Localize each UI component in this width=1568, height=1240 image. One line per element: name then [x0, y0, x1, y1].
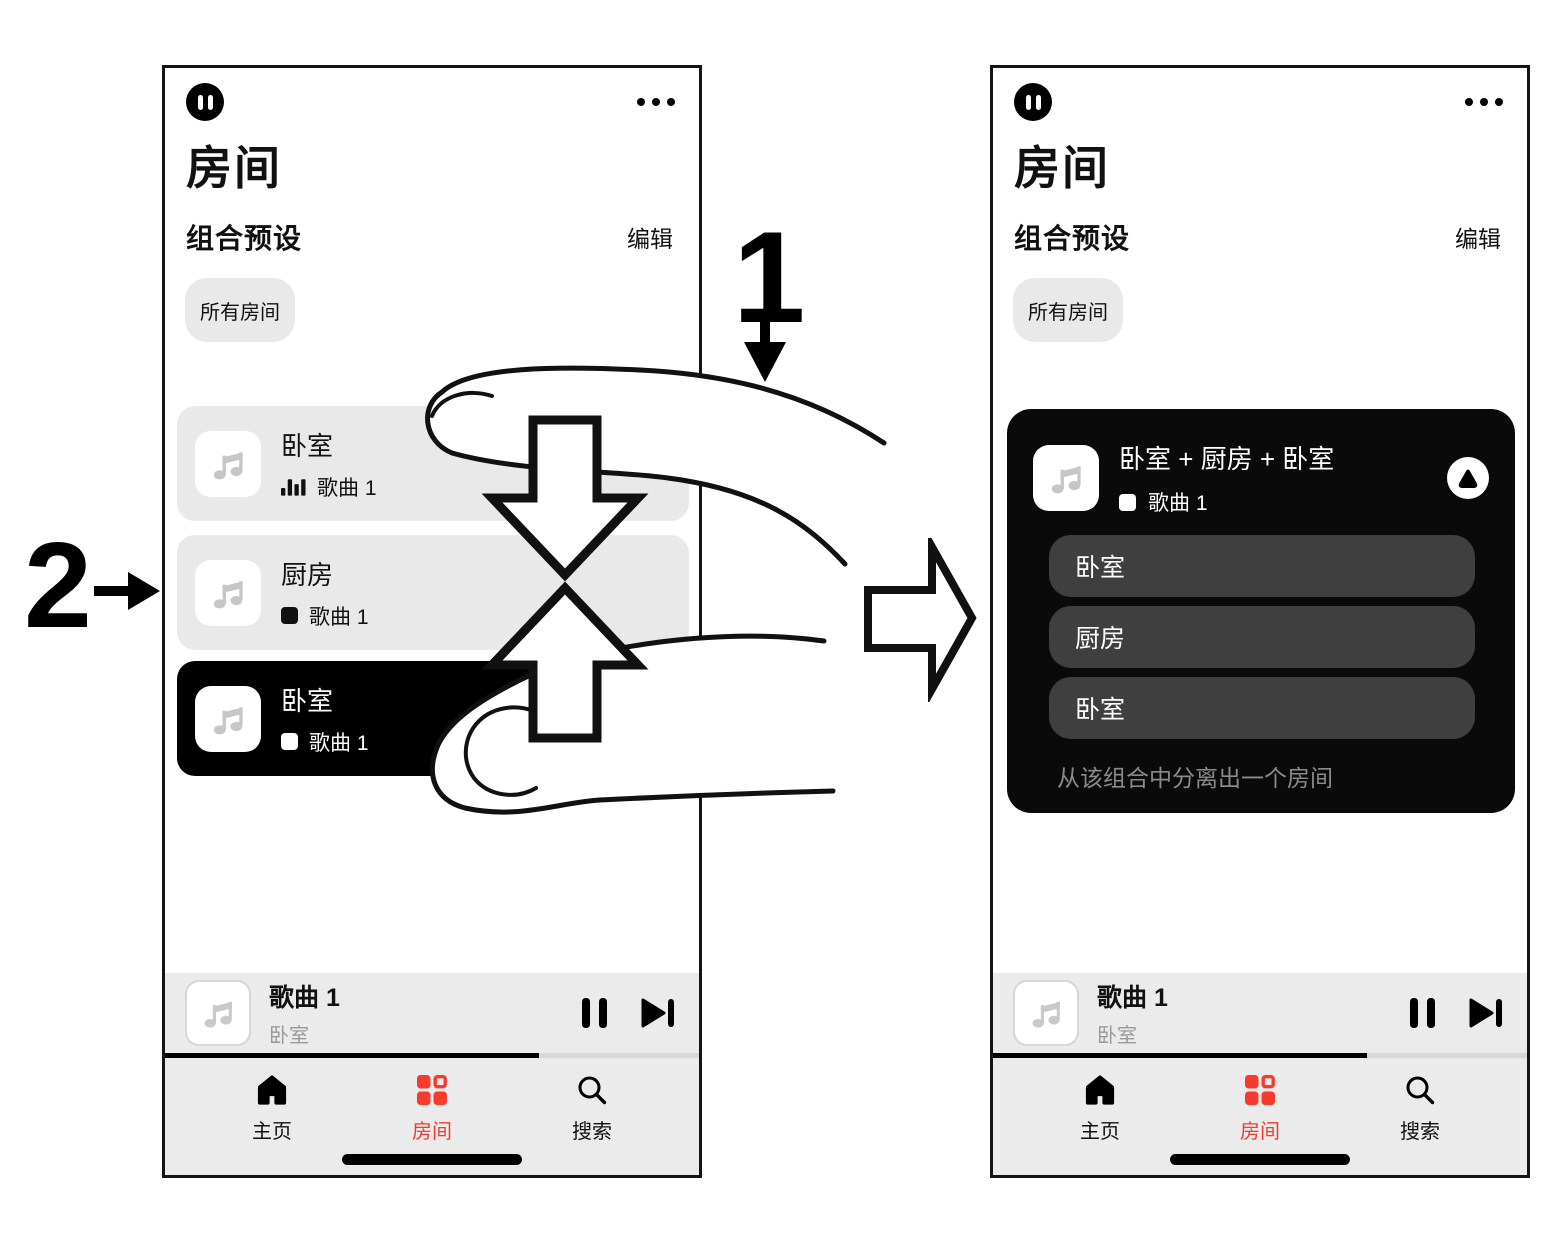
album-art-tile	[1033, 445, 1099, 511]
step-1-label: 1	[733, 212, 805, 342]
drop-icon	[1455, 465, 1481, 491]
room-track: 歌曲 1	[309, 601, 369, 631]
group-track: 歌曲 1	[1148, 487, 1208, 517]
room-name: 卧室	[281, 681, 369, 718]
group-output-button[interactable]	[1447, 457, 1489, 499]
section-title: 组合预设	[186, 217, 302, 257]
search-icon	[1403, 1074, 1437, 1106]
mini-player[interactable]: 歌曲 1 卧室	[993, 973, 1527, 1053]
tab-bar: 主页 房间 搜索	[165, 1058, 699, 1175]
tab-home[interactable]: 主页	[217, 1074, 327, 1144]
group-hint-text: 从该组合中分离出一个房间	[1057, 759, 1333, 793]
phone-screen-before: 房间 组合预设 编辑 所有房间 卧室	[162, 65, 702, 1178]
skip-next-button[interactable]	[641, 998, 677, 1028]
step-2-label: 2	[24, 524, 92, 646]
ellipsis-icon	[637, 98, 645, 106]
ellipsis-icon	[1465, 98, 1473, 106]
all-rooms-chip[interactable]: 所有房间	[185, 278, 295, 342]
room-name: 卧室	[281, 426, 377, 463]
player-album-art	[185, 980, 251, 1046]
section-title: 组合预设	[1014, 217, 1130, 257]
room-group-card[interactable]: 卧室 + 厨房 + 卧室 歌曲 1 卧室 厨房	[1007, 409, 1515, 813]
rooms-grid-icon	[415, 1074, 449, 1106]
rooms-grid-icon	[1243, 1074, 1277, 1106]
player-pause-button[interactable]	[1410, 998, 1435, 1028]
player-album-art	[1013, 980, 1079, 1046]
room-name: 厨房	[281, 555, 369, 592]
music-note-icon	[208, 444, 248, 484]
room-track: 歌曲 1	[317, 472, 377, 502]
step-2-arrow-right	[94, 572, 162, 610]
pause-all-button[interactable]	[186, 83, 224, 121]
album-art-tile	[195, 686, 261, 752]
music-note-icon	[1046, 458, 1086, 498]
home-indicator[interactable]	[1170, 1154, 1350, 1165]
player-pause-button[interactable]	[582, 998, 607, 1028]
tab-search[interactable]: 搜索	[1365, 1074, 1475, 1144]
home-indicator[interactable]	[342, 1154, 522, 1165]
group-title: 卧室 + 厨房 + 卧室	[1119, 439, 1334, 476]
room-card-bedroom[interactable]: 卧室 歌曲 1	[177, 406, 689, 521]
edit-button[interactable]: 编辑	[1455, 220, 1501, 254]
edit-button[interactable]: 编辑	[627, 220, 673, 254]
tab-home[interactable]: 主页	[1045, 1074, 1155, 1144]
home-icon	[1083, 1074, 1117, 1106]
room-card-kitchen[interactable]: 厨房 歌曲 1	[177, 535, 689, 650]
more-options-button[interactable]	[1465, 98, 1503, 106]
tab-rooms[interactable]: 房间	[377, 1074, 487, 1144]
tab-rooms[interactable]: 房间	[1205, 1074, 1315, 1144]
stopped-icon	[281, 733, 298, 750]
tab-bar: 主页 房间 搜索	[993, 1058, 1527, 1175]
all-rooms-chip[interactable]: 所有房间	[1013, 278, 1123, 342]
room-card-bedroom-selected[interactable]: 卧室 歌曲 1	[177, 661, 689, 776]
music-note-icon	[208, 573, 248, 613]
search-icon	[575, 1074, 609, 1106]
player-track: 歌曲 1	[1097, 978, 1168, 1014]
home-icon	[255, 1074, 289, 1106]
music-note-icon	[208, 699, 248, 739]
result-arrow	[858, 538, 980, 702]
pause-all-button[interactable]	[1014, 83, 1052, 121]
page-title: 房间	[1014, 132, 1110, 198]
instruction-diagram: 房间 组合预设 编辑 所有房间 卧室	[0, 0, 1568, 1240]
stopped-icon	[1119, 494, 1136, 511]
page-title: 房间	[186, 132, 282, 198]
more-options-button[interactable]	[637, 98, 675, 106]
music-note-icon	[199, 994, 237, 1032]
music-note-icon	[1027, 994, 1065, 1032]
pause-icon	[1026, 95, 1031, 110]
player-room: 卧室	[269, 1019, 340, 1048]
phone-screen-after: 房间 组合预设 编辑 所有房间 卧室 + 厨房	[990, 65, 1530, 1178]
tab-search[interactable]: 搜索	[537, 1074, 647, 1144]
player-track: 歌曲 1	[269, 978, 340, 1014]
album-art-tile	[195, 431, 261, 497]
stopped-icon	[281, 607, 298, 624]
group-room-bedroom-2[interactable]: 卧室	[1049, 677, 1475, 739]
mini-player[interactable]: 歌曲 1 卧室	[165, 973, 699, 1053]
equalizer-icon	[281, 478, 306, 496]
pause-icon	[198, 95, 203, 110]
album-art-tile	[195, 560, 261, 626]
skip-next-button[interactable]	[1469, 998, 1505, 1028]
group-room-bedroom[interactable]: 卧室	[1049, 535, 1475, 597]
room-track: 歌曲 1	[309, 727, 369, 757]
player-room: 卧室	[1097, 1019, 1168, 1048]
group-room-kitchen[interactable]: 厨房	[1049, 606, 1475, 668]
